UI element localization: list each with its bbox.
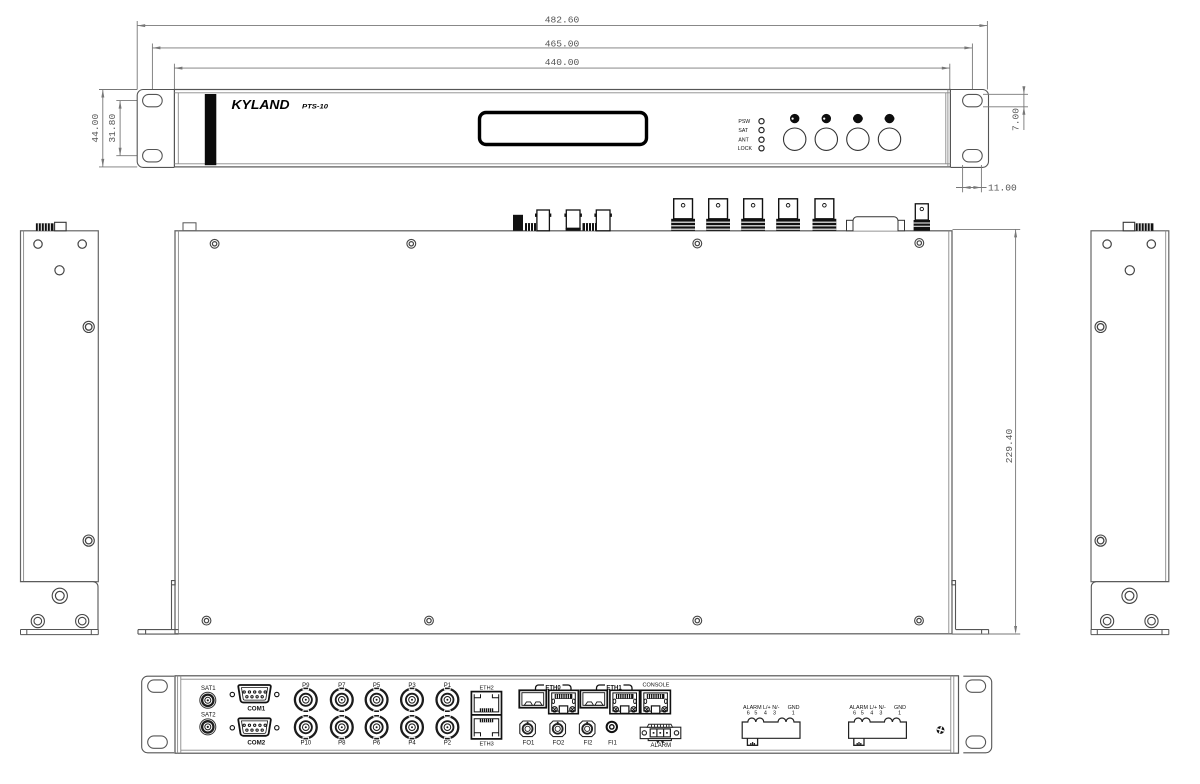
- svg-text:P6: P6: [373, 741, 381, 747]
- svg-text:ETH2: ETH2: [479, 686, 493, 692]
- svg-text:ETH3: ETH3: [479, 742, 493, 748]
- svg-text:P10: P10: [300, 741, 311, 747]
- svg-text:FI2: FI2: [584, 741, 593, 747]
- svg-text:1: 1: [898, 710, 901, 716]
- svg-text:440.00: 440.00: [545, 57, 580, 68]
- svg-text:SAT: SAT: [738, 128, 749, 134]
- svg-text:7.00: 7.00: [1011, 108, 1022, 131]
- svg-text:FO1: FO1: [523, 741, 535, 747]
- svg-text:4: 4: [870, 710, 873, 716]
- svg-text:31.80: 31.80: [107, 114, 118, 143]
- svg-text:3: 3: [879, 710, 882, 716]
- svg-text:KYLAND: KYLAND: [232, 97, 291, 112]
- svg-text:44.00: 44.00: [90, 114, 101, 143]
- svg-text:PSW: PSW: [738, 119, 750, 125]
- svg-text:11.00: 11.00: [988, 183, 1017, 194]
- svg-text:229.40: 229.40: [1004, 428, 1015, 463]
- svg-text:SAT2: SAT2: [201, 713, 216, 719]
- svg-text:5: 5: [754, 710, 757, 716]
- svg-text:6: 6: [747, 710, 750, 716]
- svg-text:PTS-10: PTS-10: [302, 104, 328, 111]
- svg-text:ALARM: ALARM: [650, 743, 671, 749]
- svg-text:4: 4: [764, 710, 767, 716]
- svg-text:CONSOLE: CONSOLE: [643, 682, 670, 688]
- svg-text:ANT: ANT: [738, 137, 749, 143]
- svg-text:6: 6: [853, 710, 856, 716]
- svg-text:482.60: 482.60: [545, 15, 580, 26]
- svg-text:FI1: FI1: [608, 741, 617, 747]
- svg-text:P8: P8: [338, 741, 346, 747]
- svg-text:COM1: COM1: [247, 705, 265, 712]
- svg-text:3: 3: [773, 710, 776, 716]
- svg-text:P4: P4: [408, 741, 416, 747]
- svg-text:P2: P2: [444, 741, 452, 747]
- svg-text:SAT1: SAT1: [201, 686, 216, 692]
- svg-text:FO2: FO2: [553, 741, 565, 747]
- svg-text:5: 5: [861, 710, 864, 716]
- svg-text:LOCK: LOCK: [738, 146, 753, 152]
- svg-text:1: 1: [792, 710, 795, 716]
- svg-text:COM2: COM2: [247, 739, 265, 746]
